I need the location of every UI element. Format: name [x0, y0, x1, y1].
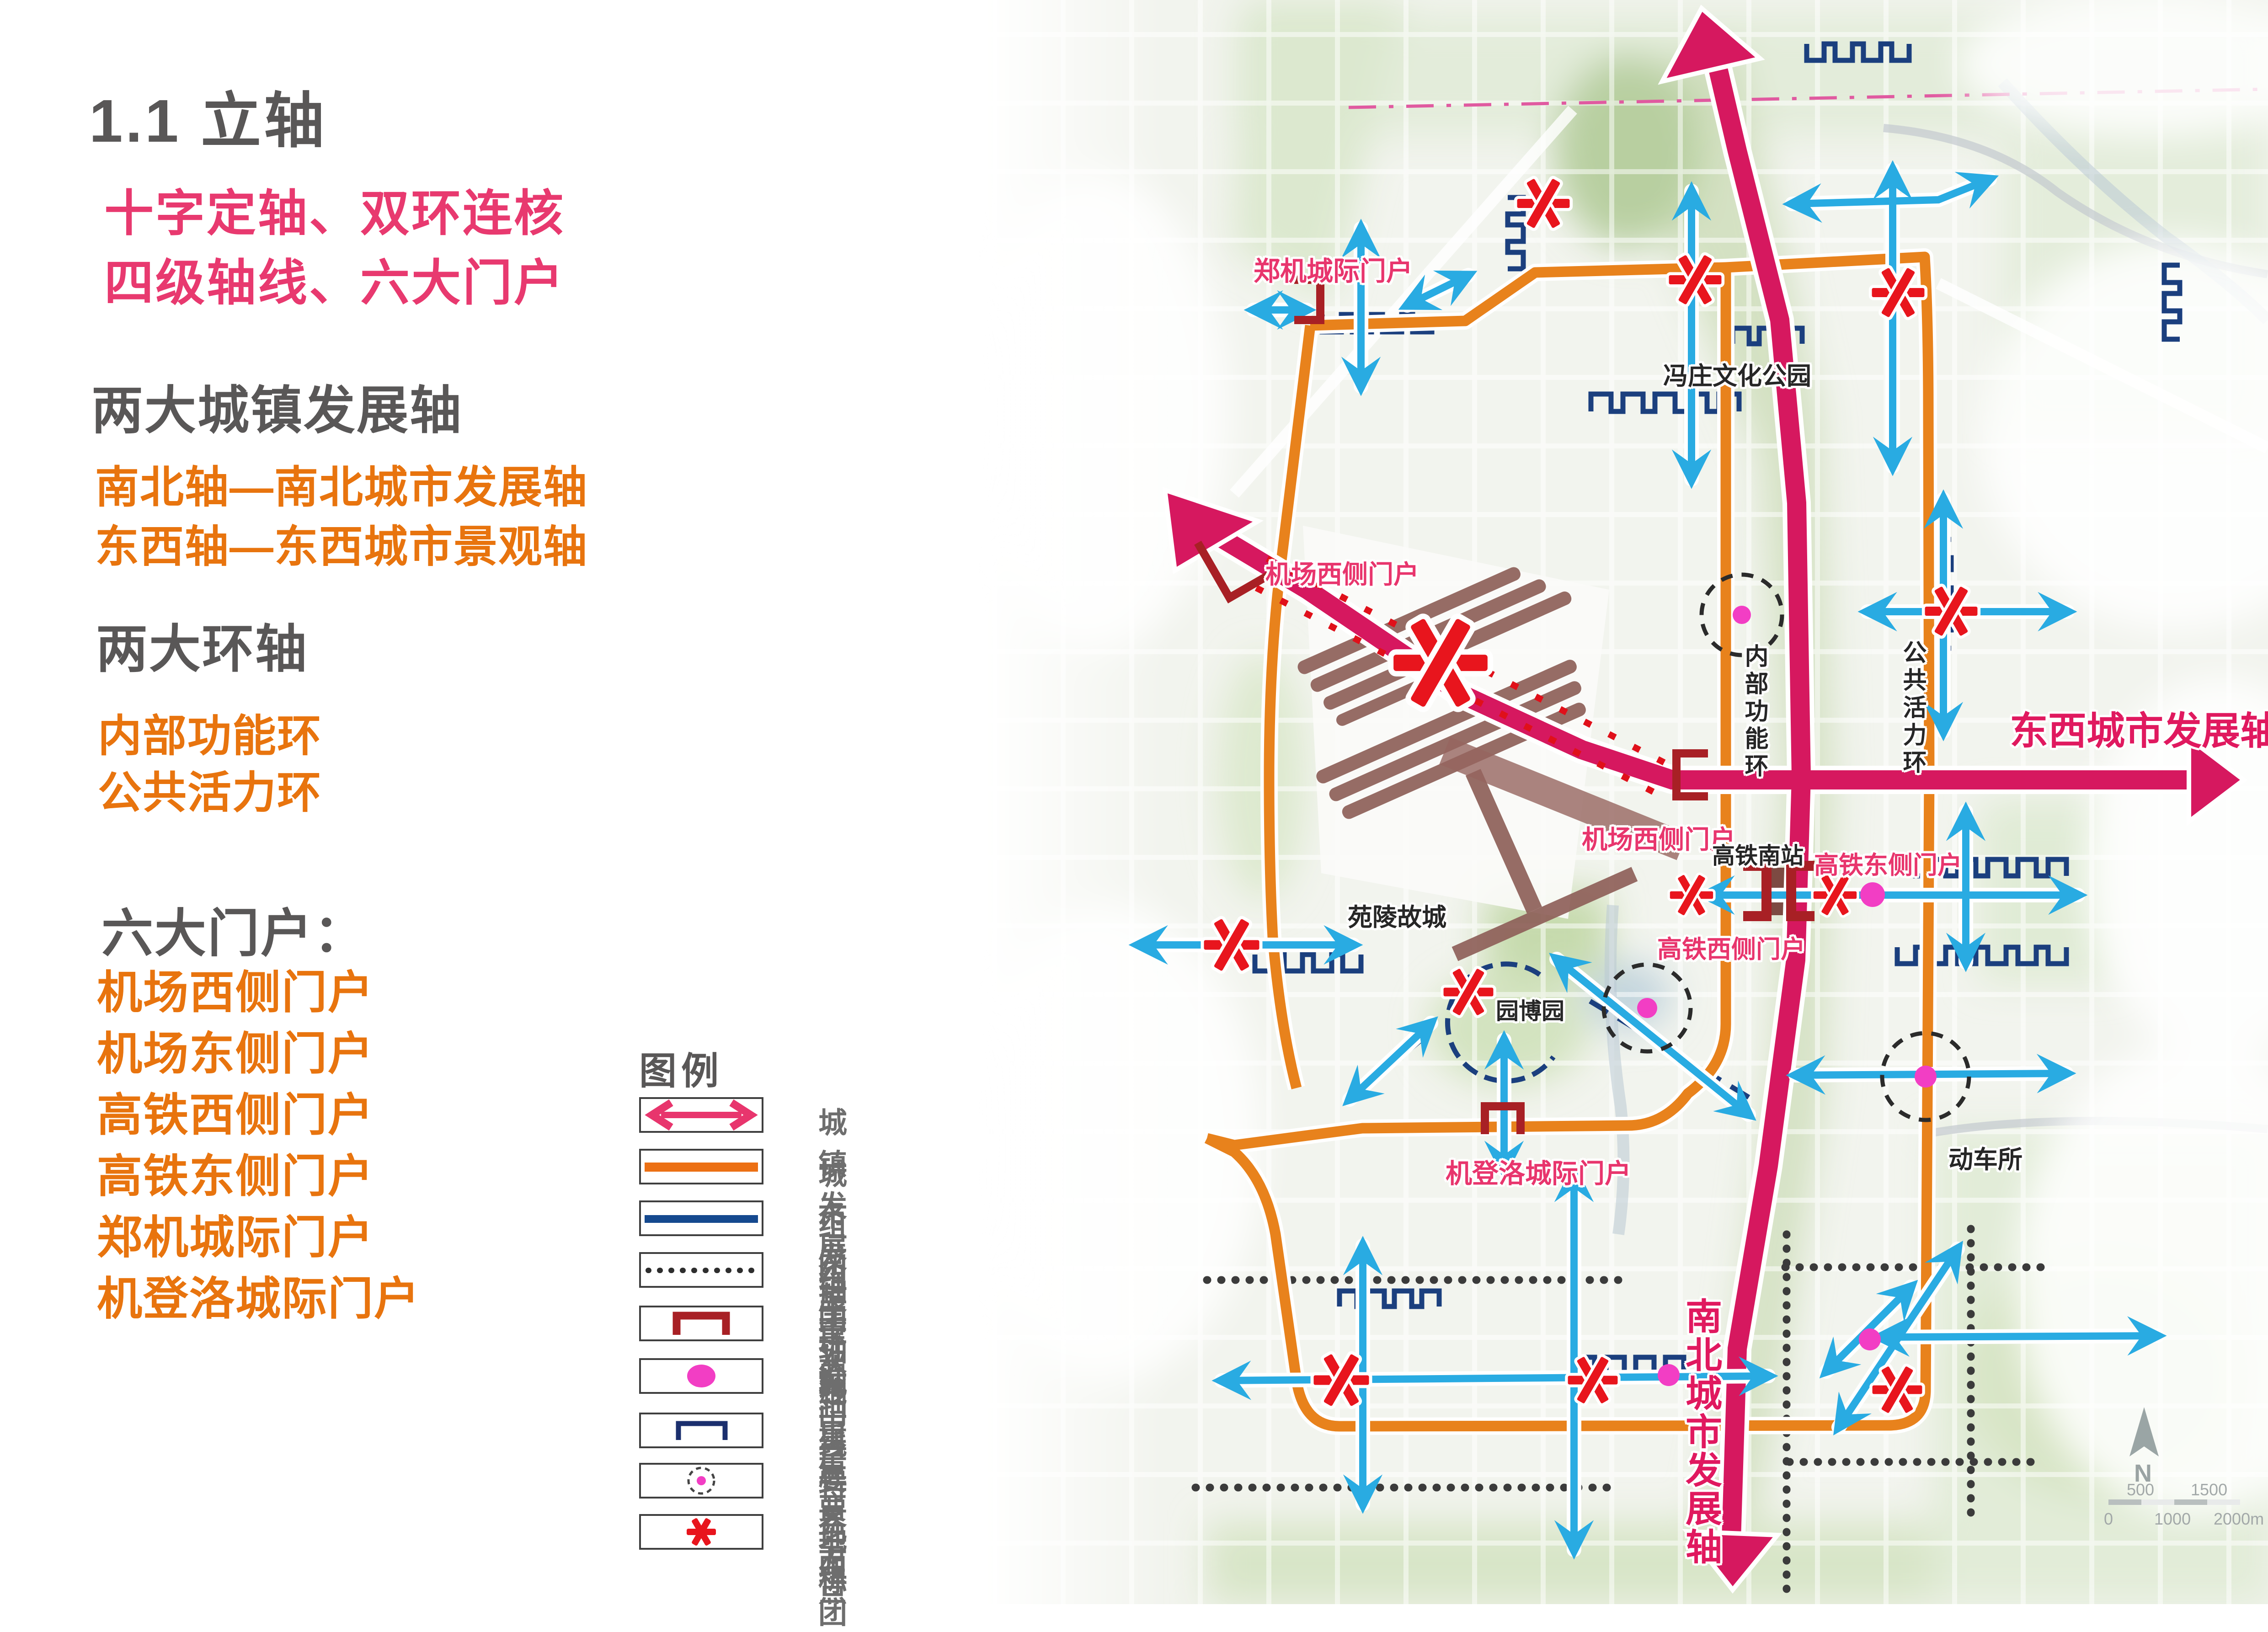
map-label-ns-axis: 南北城市发展轴 — [1674, 1297, 1727, 1566]
map-label-yuanbo-garden: 园博园 — [1496, 993, 1564, 1026]
gateway-item-2: 机场东侧门户 — [97, 1017, 374, 1083]
map-label-ew-axis: 东西城市发展轴 — [2010, 700, 2268, 756]
gateway-item-6: 机登洛城际门户 — [97, 1262, 420, 1328]
dashed-circle-icon — [641, 1465, 762, 1497]
navy-bracket-icon — [641, 1414, 762, 1446]
slogan-line-1: 十字定轴、双环连核 — [104, 174, 565, 245]
legend-swatch — [639, 1200, 763, 1236]
map-label-hsr-east-gateway: 高铁东侧门户 — [1814, 845, 1962, 881]
scale-tick-500: 500 — [2127, 1480, 2154, 1499]
dotted-line-icon — [641, 1254, 762, 1286]
map-label-public-vitality-ring: 公共活力环 — [1895, 640, 1930, 777]
scale-tick-1500: 1500 — [2191, 1480, 2227, 1499]
legend-swatch — [639, 1514, 763, 1550]
gateway-item-4: 高铁东侧门户 — [97, 1139, 374, 1205]
map-label-hsr-south-station: 高铁南站 — [1712, 837, 1804, 870]
legend-label: 地标 — [818, 1517, 849, 1600]
map-label-hsr-west-gateway: 高铁西侧门户 — [1657, 929, 1805, 965]
gate-bracket-icon — [641, 1307, 762, 1339]
legend-title: 图例 — [639, 1040, 723, 1095]
map-label-zhengji-gateway: 郑机城际门户 — [1254, 250, 1413, 288]
scale-tick-1000: 1000 — [2154, 1509, 2191, 1529]
ring-public-vitality: 公共活力环 — [98, 757, 322, 821]
navy-line-icon — [641, 1202, 762, 1234]
magenta-dot-icon — [641, 1360, 762, 1392]
gateway-item-5: 郑机城际门户 — [97, 1200, 374, 1266]
legend-swatch — [639, 1463, 763, 1499]
pink-double-arrow-icon — [641, 1099, 762, 1131]
map-label-inner-function-ring: 内部功能环 — [1737, 644, 1772, 781]
map-label-yuanling-city: 苑陵故城 — [1348, 897, 1446, 933]
section-heading-ring-axes: 两大环轴 — [96, 607, 308, 682]
map-label-emu-depot: 动车所 — [1948, 1139, 2023, 1175]
legend-swatch — [639, 1358, 763, 1394]
town-axis-ew: 东西轴—东西城市景观轴 — [95, 511, 588, 575]
scale-tick-2000m: 2000m — [2214, 1509, 2264, 1529]
planning-slide: { "panel": { "title": "1.1 立轴", "slogans… — [0, 0, 2268, 1604]
gateway-item-3: 高铁西侧门户 — [97, 1078, 374, 1144]
legend-swatch — [639, 1252, 763, 1288]
map-label-jidengluo-gateway: 机登洛城际门户 — [1446, 1152, 1631, 1190]
legend-swatch — [639, 1306, 763, 1341]
section-heading-town-axes: 两大城镇发展轴 — [91, 368, 463, 443]
legend-swatch — [639, 1149, 763, 1184]
town-axis-ns: 南北轴—南北城市发展轴 — [95, 452, 588, 515]
scale-bar — [2108, 1499, 2240, 1505]
red-asterisk-icon — [641, 1516, 762, 1548]
page-title: 1.1 立轴 — [89, 72, 327, 160]
legend-swatch — [639, 1413, 763, 1448]
gateway-item-1: 机场西侧门户 — [97, 955, 374, 1021]
ring-inner-function: 内部功能环 — [98, 700, 322, 764]
legend-swatch — [639, 1097, 763, 1133]
map-label-fengzhuang-park: 冯庄文化公园 — [1663, 356, 1811, 392]
slogan-line-2: 四级轴线、六大门户 — [104, 243, 565, 315]
map-left-fade — [978, 0, 1170, 1604]
map-label-airport-west-gateway-1: 机场西侧门户 — [1265, 554, 1419, 591]
scale-tick-0: 0 — [2104, 1509, 2113, 1529]
orange-line-icon — [641, 1151, 762, 1183]
